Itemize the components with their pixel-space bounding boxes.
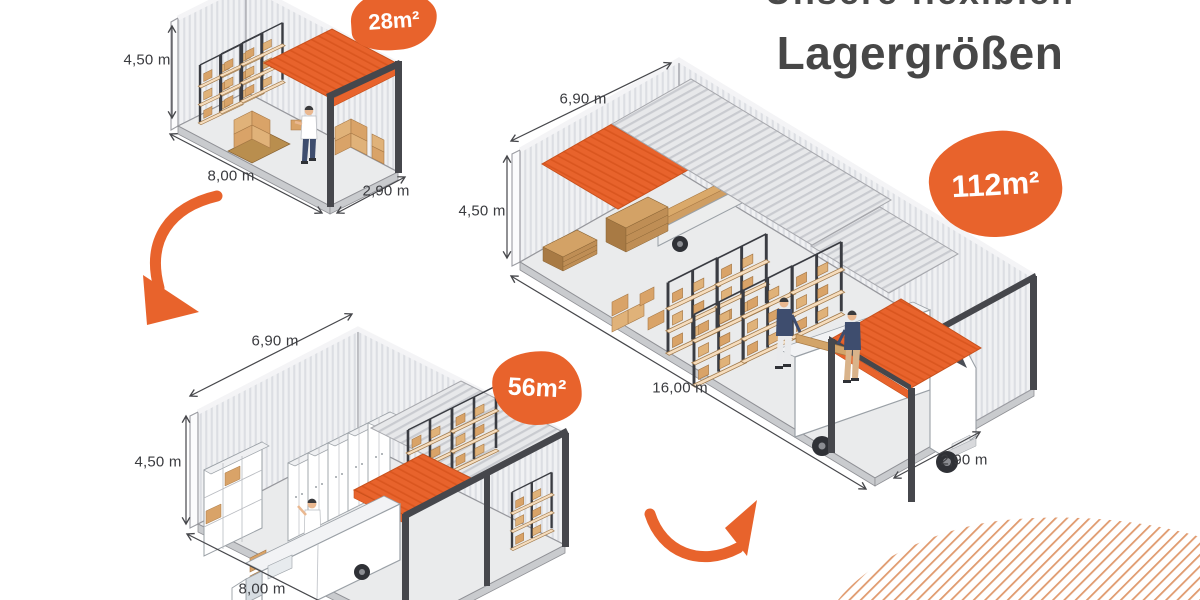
- curved-arrow-up-icon: [650, 500, 757, 557]
- unit-56-top-label: 6,90 m: [251, 333, 298, 350]
- storage-sizes-infographic: Unsere flexiblen Lagergrößen 28m² 56m² 1…: [0, 0, 1200, 600]
- page-title: Lagergrößen: [700, 26, 1140, 80]
- unit-28-width-label: 8,00 m: [207, 168, 254, 185]
- unit-112-illustration: [507, 60, 1037, 502]
- stripe-pattern-blob: [838, 517, 1200, 600]
- unit-112-depth-label: 2,90 m: [940, 452, 987, 469]
- unit-56-height-label: 4,50 m: [134, 454, 181, 471]
- curved-arrow-down-icon: [143, 196, 217, 325]
- unit-56-width-label: 8,00 m: [238, 581, 285, 598]
- unit-28-depth-label: 2,90 m: [362, 183, 409, 200]
- unit-112-width-label: 16,00 m: [652, 380, 708, 397]
- unit-28-height-label: 4,50 m: [123, 52, 170, 69]
- unit-112-height-label: 4,50 m: [458, 203, 505, 220]
- header-kicker: Unsere flexiblen: [700, 0, 1140, 12]
- unit-112-top-label: 6,90 m: [559, 91, 606, 108]
